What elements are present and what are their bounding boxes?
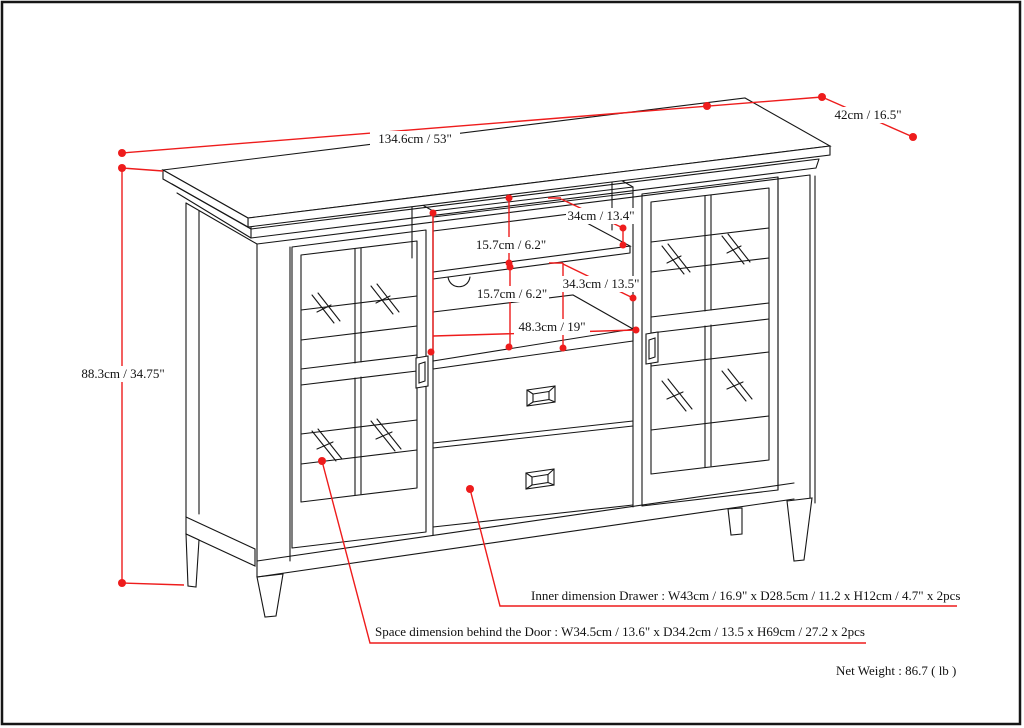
dim-top-width-label: 134.6cm / 53": [370, 131, 460, 147]
left-door: [292, 230, 428, 548]
drawer-dimension-note: Inner dimension Drawer : W43cm / 16.9" x…: [531, 588, 960, 603]
dim-opening-width-label: 48.3cm / 19": [514, 319, 590, 335]
dim-lower-clearance-label: 15.7cm / 6.2": [475, 286, 549, 302]
right-legs: [728, 498, 812, 561]
left-side-panel: [186, 203, 257, 517]
dim-height-label: 88.3cm / 34.75": [74, 366, 172, 382]
bottom-rail-bottom: [257, 499, 794, 577]
cabinet-line-art: [163, 98, 830, 617]
left-door-mullion-upper: [355, 248, 361, 363]
right-door-handle: [646, 332, 658, 364]
left-door-handle: [416, 356, 428, 388]
right-door-mullion-upper: [705, 195, 711, 311]
right-door-mullion-lower: [705, 325, 711, 467]
left-door-shelf-lines-lower: [301, 420, 417, 464]
left-door-midrail: [301, 355, 417, 385]
spec-sheet-page: 134.6cm / 53" 42cm / 16.5" 88.3cm / 34.7…: [0, 0, 1024, 728]
door-dimension-note: Space dimension behind the Door : W34.5c…: [375, 624, 865, 639]
left-legs-and-stretcher: [186, 517, 283, 617]
cord-hole: [448, 277, 470, 287]
drawer-bottom-edge: [433, 505, 633, 527]
drawer-separator: [433, 421, 633, 448]
leader-door-note: [322, 461, 866, 643]
net-weight-note: Net Weight : 86.7 ( lb ): [836, 663, 956, 678]
top-slab: [163, 98, 830, 238]
drawer-section: [433, 386, 633, 527]
right-door-shelf-lines-upper: [651, 228, 769, 272]
front-right-leg: [787, 498, 812, 561]
right-door-shelf-lines-lower: [651, 352, 769, 430]
front-left-leg: [257, 574, 283, 617]
dim-top-depth-label: 42cm / 16.5": [827, 107, 909, 123]
left-door-mullion-lower: [355, 377, 361, 495]
right-door-midrail: [651, 303, 769, 333]
dim-upper-clearance-label: 15.7cm / 6.2": [474, 237, 548, 253]
drawer-handle-top: [527, 386, 555, 406]
back-left-leg: [186, 534, 199, 587]
drawer-handle-bottom: [526, 469, 554, 489]
dim-lower-shelf-depth-label: 34.3cm / 13.5": [561, 276, 641, 292]
back-right-leg: [728, 508, 742, 535]
right-door: [642, 177, 778, 506]
center-interior: [412, 175, 633, 535]
glass-shine-marks: [312, 284, 401, 461]
dim-upper-shelf-depth-label: 34cm / 13.4": [566, 208, 636, 224]
